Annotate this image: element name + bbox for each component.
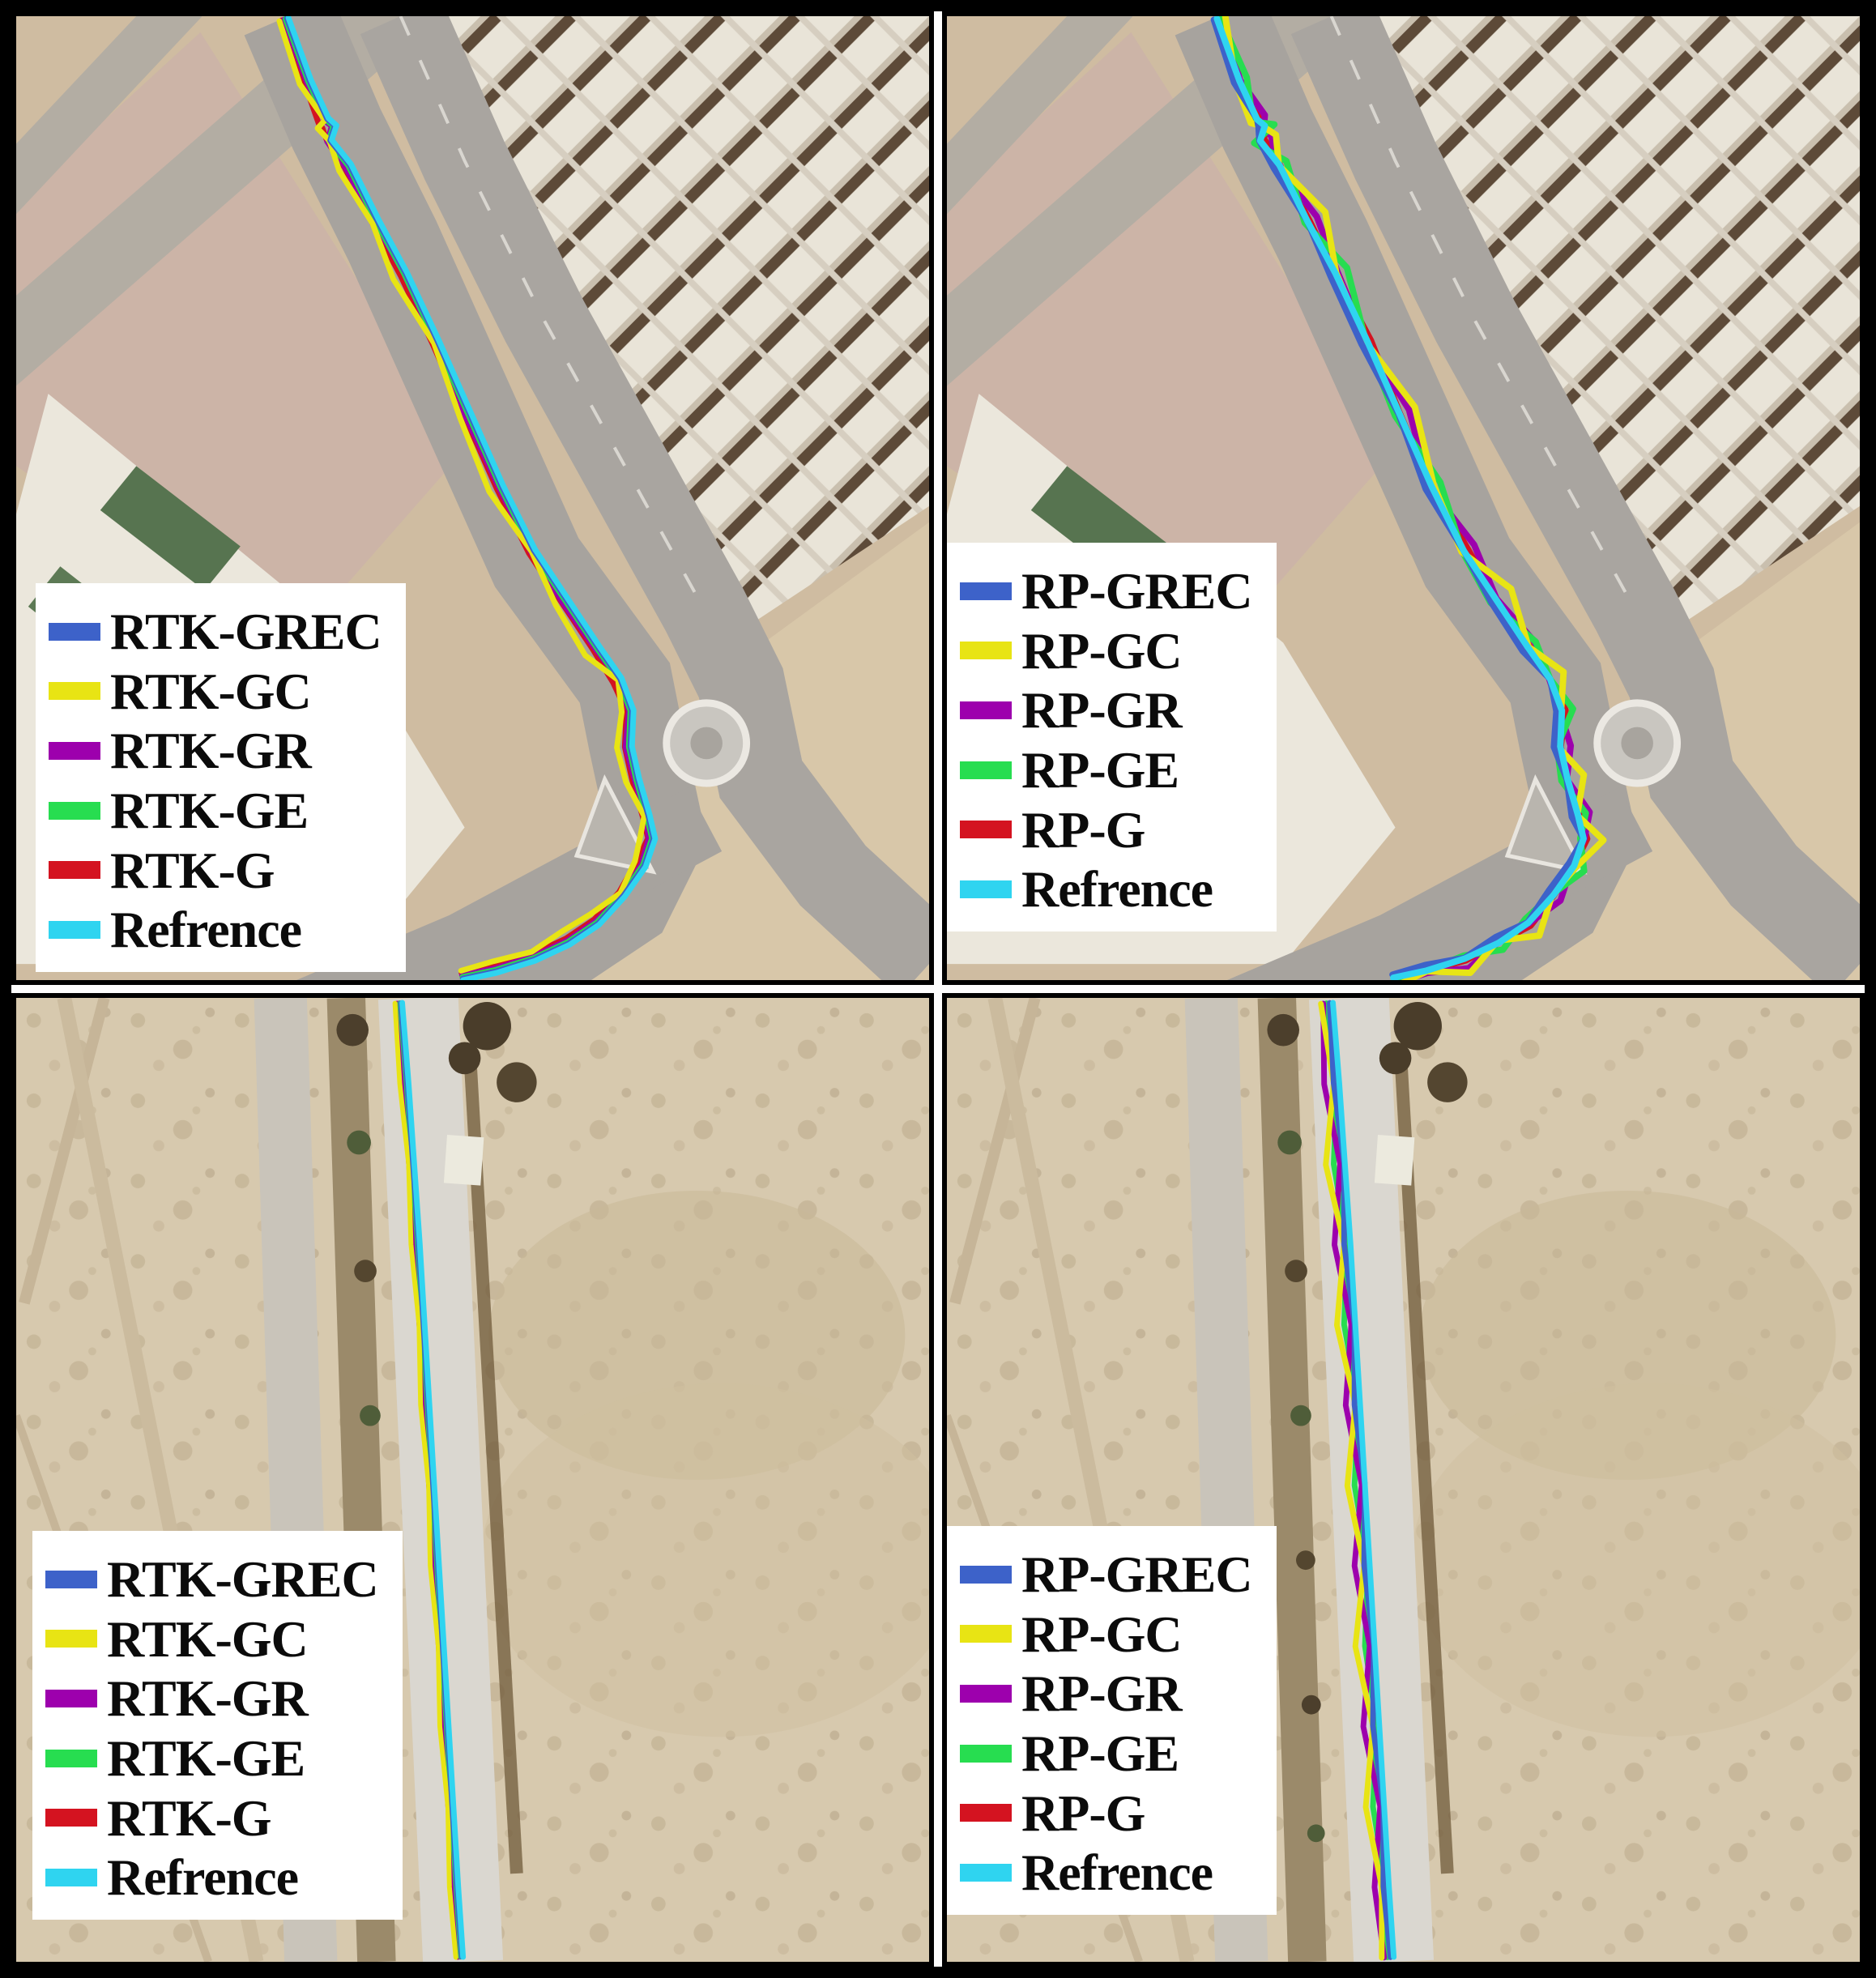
legend-item: RTK-GC: [49, 663, 382, 721]
legend-item: RTK-GE: [49, 782, 382, 840]
legend-label: RP-GE: [1021, 741, 1179, 799]
red-line-swatch: [45, 1809, 97, 1827]
tree: [1394, 1002, 1442, 1051]
blue-line-swatch: [960, 1566, 1012, 1584]
legend-item: Refrence: [49, 901, 382, 959]
red-line-swatch: [49, 861, 100, 879]
legend-item: RTK-GR: [45, 1669, 378, 1728]
legend-item: RTK-GE: [45, 1729, 378, 1788]
purple-line-swatch: [49, 742, 100, 760]
legend-label: RP-G: [1021, 1784, 1145, 1843]
legend: RP-GRECRP-GCRP-GRRP-GERP-GRefrence: [947, 1526, 1277, 1915]
tree: [1277, 1131, 1302, 1155]
blue-line-swatch: [49, 623, 100, 641]
roundabout-center: [1621, 727, 1653, 760]
legend-label: Refrence: [110, 901, 301, 959]
legend-label: RP-GR: [1021, 1665, 1182, 1723]
green-line-swatch: [960, 761, 1012, 779]
legend-label: Refrence: [1021, 860, 1213, 919]
legend-label: Refrence: [1021, 1844, 1213, 1902]
legend-item: RP-GE: [960, 1724, 1252, 1783]
tree: [1427, 1062, 1467, 1102]
purple-line-swatch: [960, 1685, 1012, 1703]
cyan-line-swatch: [960, 880, 1012, 898]
legend-label: Refrence: [107, 1848, 298, 1907]
yellow-line-swatch: [49, 682, 100, 700]
legend-label: RTK-GREC: [107, 1550, 378, 1609]
legend-label: RTK-GREC: [110, 603, 382, 661]
legend-item: Refrence: [960, 860, 1252, 919]
tree: [360, 1405, 381, 1426]
blue-line-swatch: [45, 1571, 97, 1588]
tree: [497, 1062, 536, 1102]
tree: [1285, 1260, 1307, 1282]
legend-item: RTK-GREC: [45, 1550, 378, 1609]
legend-item: RP-GREC: [960, 1545, 1252, 1604]
legend-item: RTK-G: [49, 842, 382, 900]
tree: [1302, 1695, 1321, 1715]
satellite-panel-top-right: RP-GRECRP-GCRP-GRRP-GERP-GRefrence: [942, 11, 1865, 985]
legend-label: RTK-GC: [110, 663, 311, 721]
legend-item: RP-GC: [960, 1605, 1252, 1664]
legend-item: RP-GC: [960, 622, 1252, 680]
legend-item: Refrence: [45, 1848, 378, 1907]
legend: RP-GRECRP-GCRP-GRRP-GERP-GRefrence: [947, 543, 1277, 931]
legend-label: RTK-GR: [107, 1669, 308, 1728]
green-line-swatch: [45, 1750, 97, 1767]
roundabout-center: [690, 727, 723, 760]
tree: [354, 1260, 377, 1282]
legend-label: RTK-GE: [107, 1729, 305, 1788]
legend-label: RP-GREC: [1021, 562, 1252, 620]
cyan-line-swatch: [960, 1864, 1012, 1882]
legend-item: RTK-GC: [45, 1610, 378, 1669]
panel-grid: RTK-GRECRTK-GCRTK-GRRTK-GERTK-GRefrence: [11, 11, 1865, 1967]
cyan-line-swatch: [49, 921, 100, 939]
legend-label: RP-GE: [1021, 1724, 1179, 1783]
legend-label: RTK-GC: [107, 1610, 308, 1669]
tree: [1267, 1014, 1299, 1047]
legend-item: RP-G: [960, 801, 1252, 859]
satellite-panel-bottom-right: RP-GRECRP-GCRP-GRRP-GERP-GRefrence: [942, 993, 1865, 1967]
blue-line-swatch: [960, 582, 1012, 600]
tree: [1296, 1550, 1315, 1570]
cyan-line-swatch: [45, 1869, 97, 1886]
legend-item: RP-G: [960, 1784, 1252, 1843]
green-line-swatch: [960, 1745, 1012, 1763]
red-line-swatch: [960, 821, 1012, 838]
tree: [1379, 1042, 1412, 1075]
tree: [347, 1131, 371, 1155]
tree: [449, 1042, 481, 1075]
tree: [1307, 1824, 1325, 1842]
satellite-panel-top-left: RTK-GRECRTK-GCRTK-GRRTK-GERTK-GRefrence: [11, 11, 934, 985]
legend-item: RTK-GREC: [49, 603, 382, 661]
legend-item: RTK-GR: [49, 722, 382, 780]
green-line-swatch: [49, 802, 100, 820]
tree: [463, 1002, 511, 1051]
legend-item: RP-GR: [960, 1665, 1252, 1723]
legend-label: RTK-GR: [110, 722, 311, 780]
satellite-panel-bottom-left: RTK-GRECRTK-GCRTK-GRRTK-GERTK-GRefrence: [11, 993, 934, 1967]
legend-item: RP-GE: [960, 741, 1252, 799]
red-line-swatch: [960, 1804, 1012, 1822]
legend-label: RP-G: [1021, 801, 1145, 859]
yellow-line-swatch: [45, 1630, 97, 1648]
legend: RTK-GRECRTK-GCRTK-GRRTK-GERTK-GRefrence: [32, 1531, 403, 1920]
legend-label: RP-GREC: [1021, 1545, 1252, 1604]
purple-line-swatch: [960, 701, 1012, 719]
legend-item: RP-GR: [960, 681, 1252, 740]
yellow-line-swatch: [960, 1625, 1012, 1643]
purple-line-swatch: [45, 1690, 97, 1707]
legend-label: RTK-G: [107, 1789, 271, 1848]
legend-label: RTK-G: [110, 842, 275, 900]
tree: [1290, 1405, 1311, 1426]
legend-item: Refrence: [960, 1844, 1252, 1902]
legend-label: RP-GC: [1021, 1605, 1182, 1664]
legend-label: RP-GC: [1021, 622, 1182, 680]
roadside-structure: [444, 1135, 484, 1186]
roadside-structure: [1375, 1135, 1415, 1186]
yellow-line-swatch: [960, 642, 1012, 659]
legend: RTK-GRECRTK-GCRTK-GRRTK-GERTK-GRefrence: [36, 583, 406, 972]
tree: [336, 1014, 369, 1047]
figure-gps-trajectory-comparison: RTK-GRECRTK-GCRTK-GRRTK-GERTK-GRefrence: [0, 0, 1876, 1978]
legend-item: RP-GREC: [960, 562, 1252, 620]
legend-label: RP-GR: [1021, 681, 1182, 740]
legend-label: RTK-GE: [110, 782, 308, 840]
legend-item: RTK-G: [45, 1789, 378, 1848]
